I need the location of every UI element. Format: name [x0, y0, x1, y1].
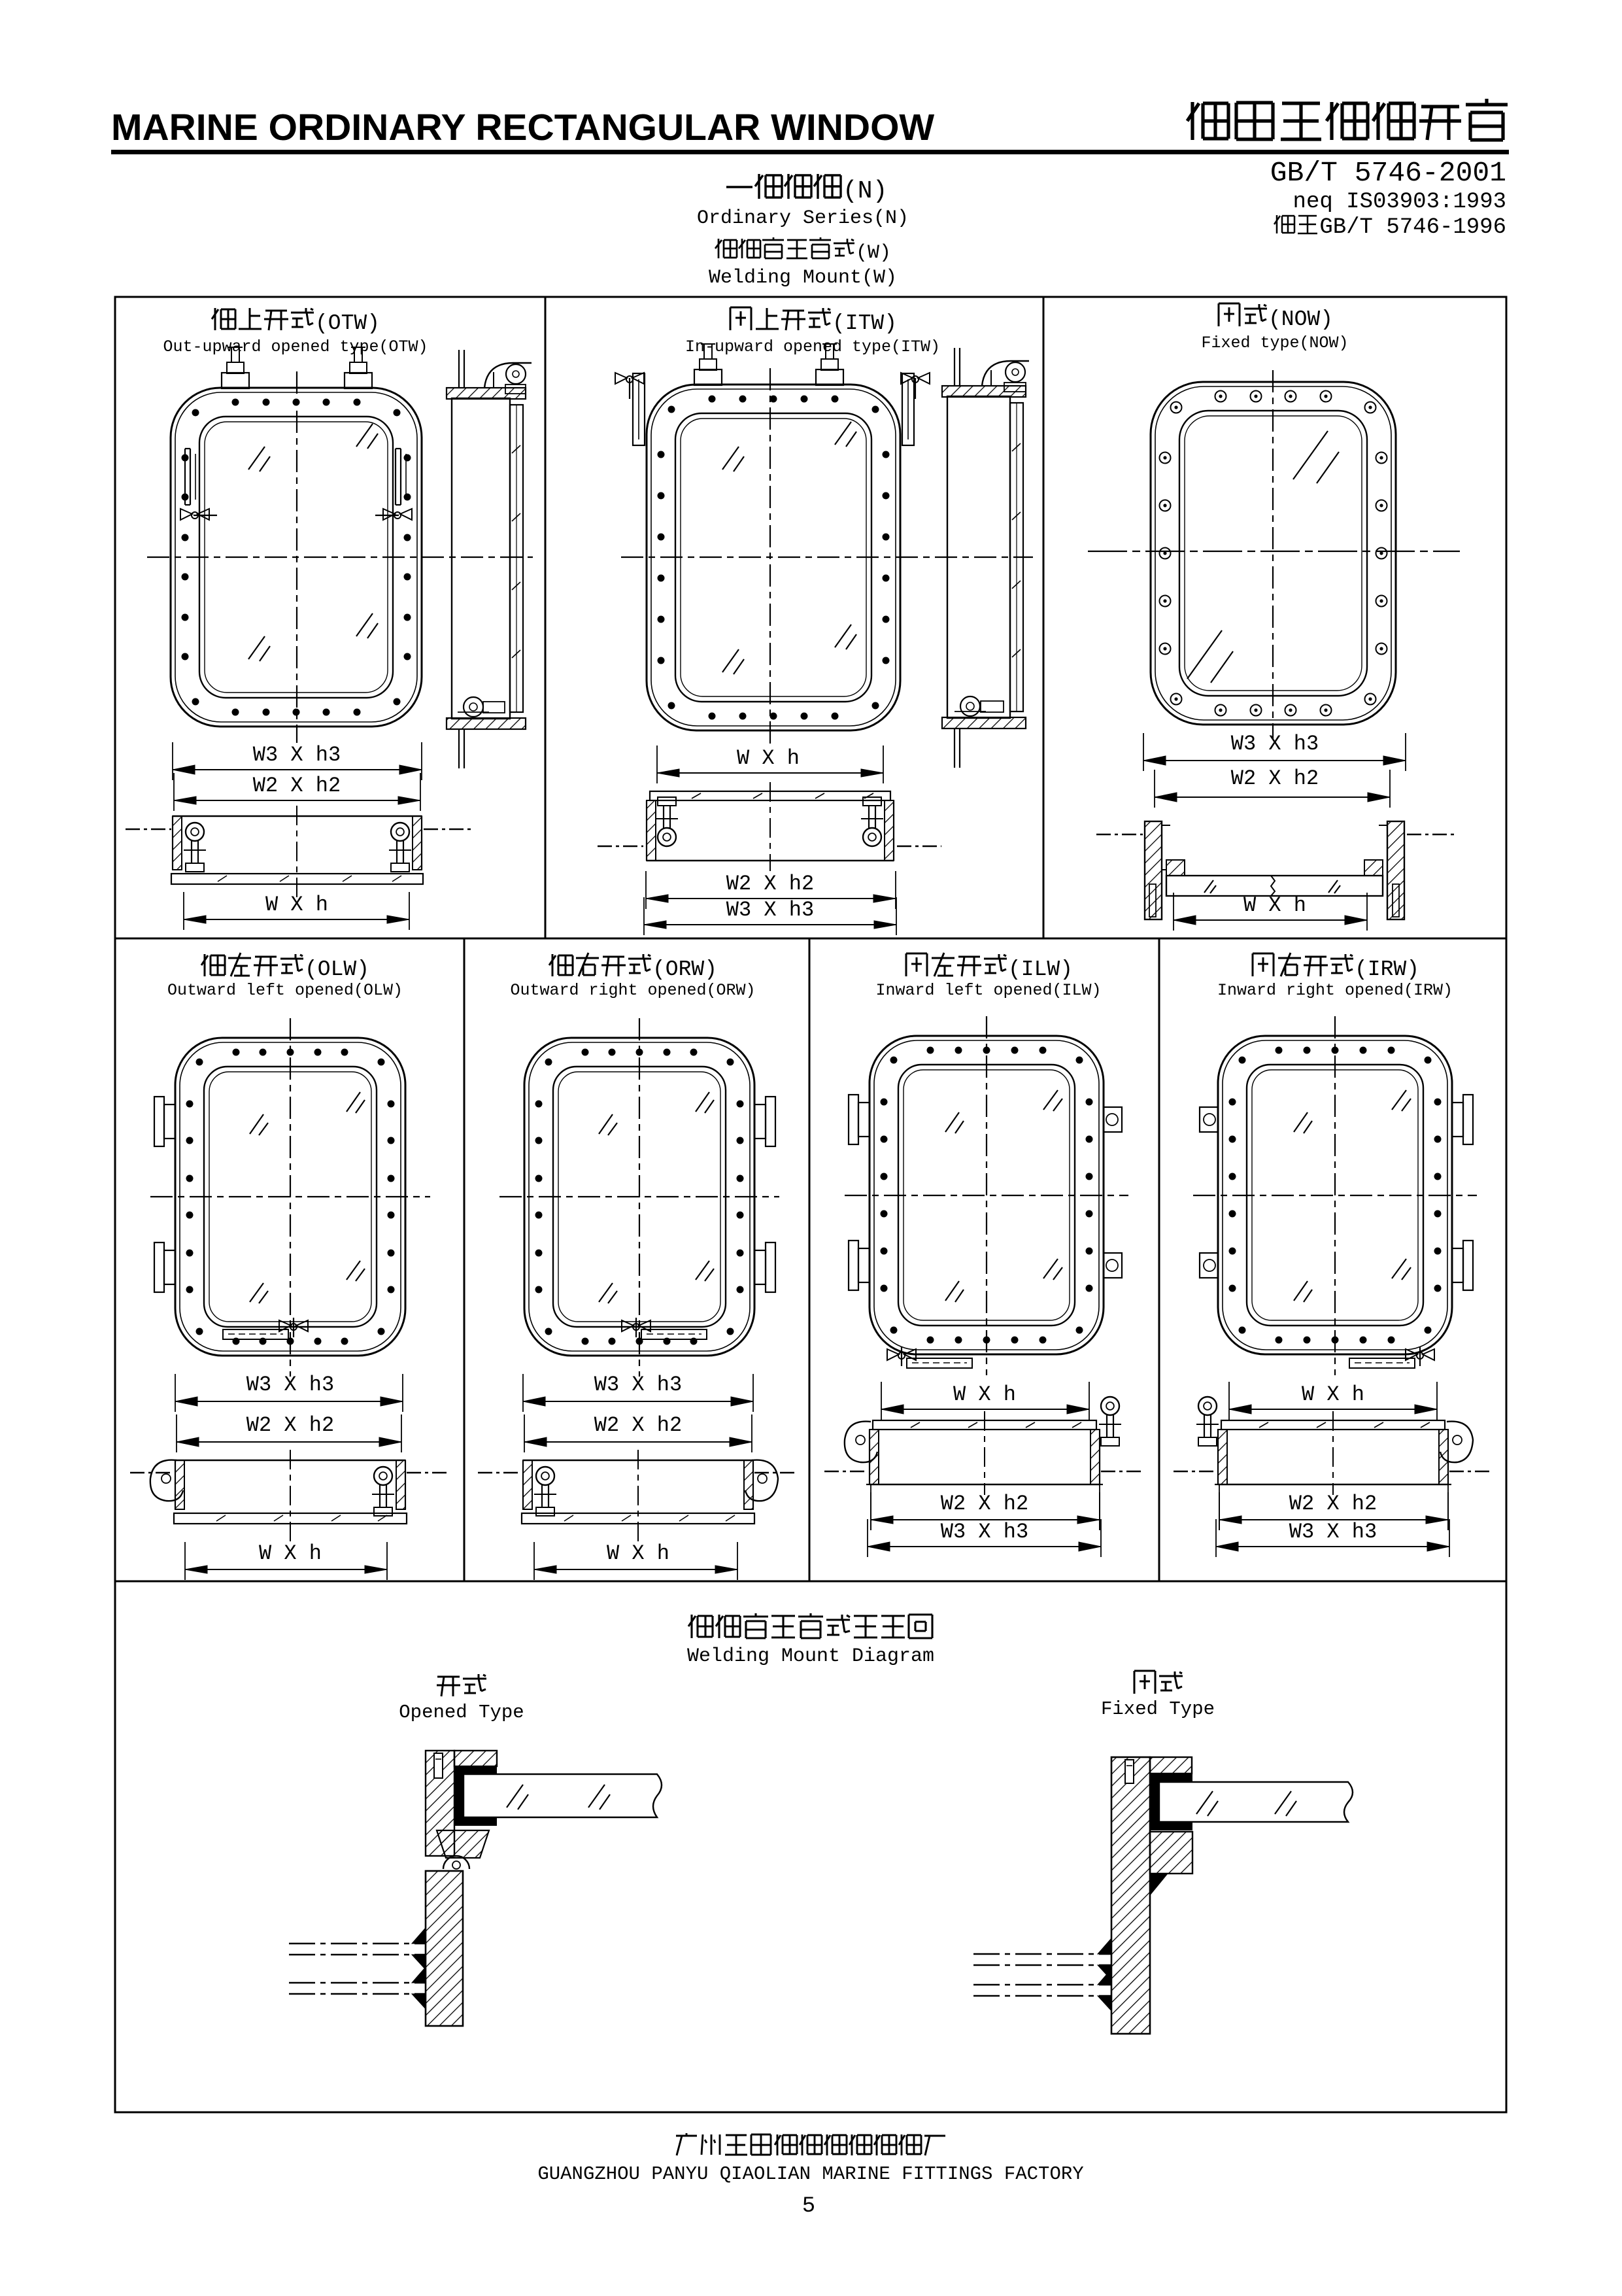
svg-text:W3 X h3: W3 X h3	[1231, 732, 1319, 756]
svg-text:W3 X h3: W3 X h3	[1289, 1520, 1377, 1544]
svg-text:neq IS03903:1993: neq IS03903:1993	[1293, 190, 1506, 214]
svg-text:Outward left opened(OLW): Outward left opened(OLW)	[167, 981, 403, 1000]
svg-text:Out-upward opened type(OTW): Out-upward opened type(OTW)	[163, 337, 428, 356]
svg-text:W X h: W X h	[1243, 893, 1306, 917]
svg-text:Fixed type(NOW): Fixed type(NOW)	[1201, 334, 1348, 352]
svg-text:GB/T 5746-1996: GB/T 5746-1996	[1319, 215, 1506, 240]
svg-text:5: 5	[802, 2194, 815, 2219]
svg-text:W2 X h2: W2 X h2	[941, 1492, 1028, 1516]
svg-text:W3 X h3: W3 X h3	[726, 898, 814, 922]
svg-text:(ORW): (ORW)	[652, 957, 717, 982]
svg-text:Outward right opened(ORW): Outward right opened(ORW)	[510, 981, 755, 1000]
svg-text:(N): (N)	[843, 177, 887, 205]
svg-text:W3 X h3: W3 X h3	[941, 1520, 1028, 1544]
svg-text:W2 X h2: W2 X h2	[1231, 766, 1319, 791]
svg-text:W X h: W X h	[953, 1382, 1016, 1407]
svg-text:Welding Mount(W): Welding Mount(W)	[709, 267, 897, 289]
svg-text:(ITW): (ITW)	[832, 311, 897, 335]
svg-text:Fixed Type: Fixed Type	[1101, 1698, 1215, 1720]
svg-text:W X h: W X h	[265, 893, 328, 917]
svg-text:W2 X h2: W2 X h2	[1289, 1492, 1377, 1516]
svg-text:(IRW): (IRW)	[1355, 957, 1419, 982]
svg-text:Inward right opened(IRW): Inward right opened(IRW)	[1217, 981, 1453, 1000]
svg-text:W2 X h2: W2 X h2	[594, 1413, 682, 1437]
svg-text:(ILW): (ILW)	[1008, 957, 1073, 982]
svg-text:W X h: W X h	[1302, 1382, 1364, 1407]
svg-text:(OTW): (OTW)	[315, 311, 380, 335]
svg-text:(OLW): (OLW)	[305, 957, 369, 982]
svg-text:W X h: W X h	[607, 1541, 669, 1566]
svg-text:W2 X h2: W2 X h2	[253, 774, 341, 798]
svg-text:W3 X h3: W3 X h3	[253, 743, 341, 767]
svg-text:W3 X h3: W3 X h3	[246, 1373, 334, 1397]
svg-text:W3 X h3: W3 X h3	[594, 1373, 682, 1397]
svg-text:W2 X h2: W2 X h2	[726, 872, 814, 896]
svg-text:Inward left opened(ILW): Inward left opened(ILW)	[875, 981, 1101, 1000]
svg-text:In-upward opened type(ITW): In-upward opened type(ITW)	[685, 337, 940, 356]
svg-text:GB/T 5746-2001: GB/T 5746-2001	[1270, 157, 1506, 189]
svg-text:Opened Type: Opened Type	[399, 1702, 524, 1723]
svg-text:Welding Mount Diagram: Welding Mount Diagram	[687, 1645, 934, 1668]
svg-text:GUANGZHOU PANYU QIAOLIAN MARIN: GUANGZHOU PANYU QIAOLIAN MARINE FITTINGS…	[537, 2163, 1083, 2185]
svg-text:W X h: W X h	[259, 1541, 322, 1566]
svg-text:(W): (W)	[856, 242, 891, 264]
svg-text:MARINE ORDINARY RECTANGULAR WI: MARINE ORDINARY RECTANGULAR WINDOW	[111, 107, 934, 148]
svg-text:(NOW): (NOW)	[1268, 307, 1333, 332]
svg-text:W2 X h2: W2 X h2	[246, 1413, 334, 1437]
svg-text:W X h: W X h	[737, 746, 800, 770]
svg-text:Ordinary Series(N): Ordinary Series(N)	[697, 207, 909, 230]
